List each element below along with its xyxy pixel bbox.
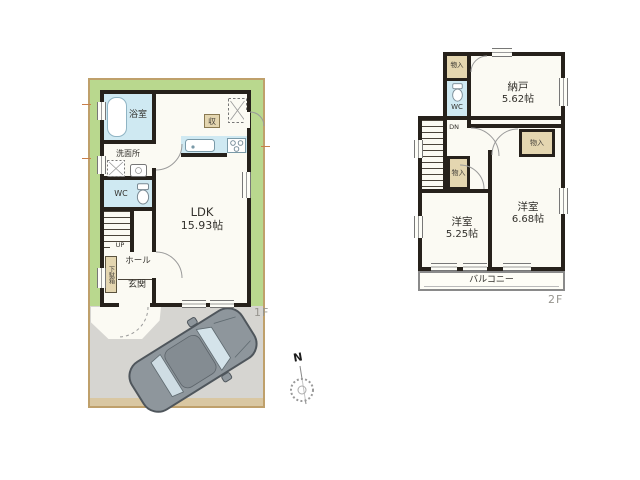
window [414, 140, 423, 158]
dimension-tick [261, 146, 270, 147]
closet-top-label: 物入 [447, 62, 467, 69]
door-swing-arc [156, 144, 182, 170]
window [559, 188, 568, 214]
wall [104, 140, 156, 144]
kitchen-storage-box: 収 [204, 114, 220, 128]
shoe-cabinet-label: 下駄箱 [107, 266, 116, 284]
west-room-label: 洋室 [432, 217, 492, 229]
window [492, 48, 512, 57]
kitchen-counter-edge [181, 153, 227, 157]
east-room-label: 洋室 [498, 202, 558, 214]
window [242, 172, 251, 198]
door-swing-arc [492, 129, 518, 155]
floor-plan-canvas: UP 下駄箱 収 [0, 0, 640, 480]
east-room-size-label: 6.68帖 [498, 214, 558, 225]
dimension-tick [82, 104, 91, 105]
floor2-label: 2F [548, 293, 563, 306]
window [97, 156, 106, 174]
door-swing-arc [460, 165, 484, 189]
closet-east: 物入 [519, 129, 555, 157]
window [559, 78, 568, 106]
stairs-dn-label: DN [446, 124, 462, 131]
window [210, 300, 234, 308]
door-swing-arc [471, 56, 487, 72]
door-swing-arc [250, 112, 264, 128]
dimension-tick [82, 158, 91, 159]
wc-label-1f: WC [108, 190, 134, 199]
west-room-size-label: 5.25帖 [432, 229, 492, 240]
ldk-room-label: LDK [172, 206, 232, 219]
window [182, 300, 206, 308]
toilet-icon [136, 183, 150, 205]
washing-machine-icon [107, 160, 125, 177]
kitchen-sink-icon [185, 139, 215, 152]
floor1-label: 1F [254, 306, 269, 319]
window [97, 268, 106, 288]
wc-label-2f: WC [447, 104, 467, 112]
wall [488, 150, 492, 267]
stairs-up-label: UP [110, 242, 130, 249]
compass-icon [284, 352, 324, 416]
wall [447, 78, 467, 81]
window [463, 263, 487, 271]
staircase-2f [422, 120, 443, 189]
entrance-door-swing-arc [118, 307, 150, 339]
ldk-size-label: 15.93帖 [172, 220, 232, 232]
vanity-sink-icon [130, 164, 147, 177]
toilet-icon [451, 83, 464, 102]
balcony-label: バルコニー [469, 276, 514, 286]
hall-label: ホール [116, 257, 160, 266]
storeroom-label: 納戸 [488, 82, 548, 94]
kitchen-storage-label: 収 [208, 116, 216, 127]
window [414, 216, 423, 238]
closet-east-label: 物入 [530, 138, 544, 148]
window [97, 102, 106, 120]
stove-icon [227, 138, 246, 153]
balcony: バルコニー [418, 271, 565, 291]
window [431, 263, 457, 271]
wall [130, 211, 134, 252]
storeroom-size-label: 5.62帖 [488, 94, 548, 105]
window [503, 263, 531, 271]
bath-label: 浴室 [123, 111, 153, 121]
entrance-label: 玄関 [119, 281, 155, 291]
balcony-inner-line [424, 286, 559, 287]
washroom-label: 洗面所 [106, 150, 150, 159]
